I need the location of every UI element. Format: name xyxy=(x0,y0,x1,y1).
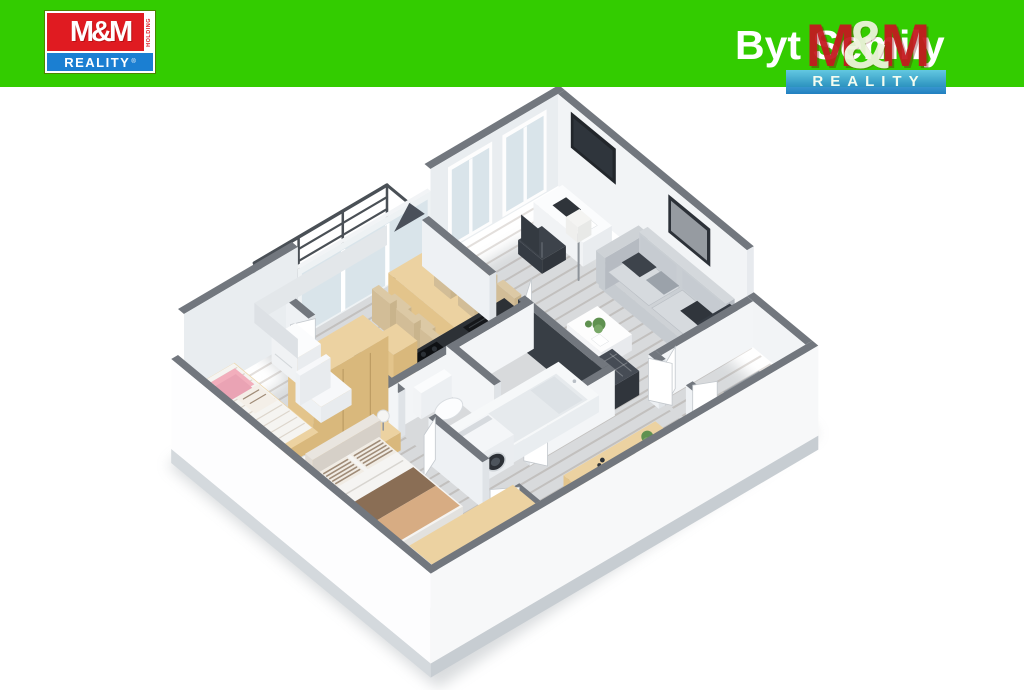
brand-banner: M&M HOLDING REALITY® Byt Semily M & M RE… xyxy=(0,0,1024,87)
mm-reality-logo: M&M HOLDING REALITY® xyxy=(45,11,155,73)
door-leaf xyxy=(648,358,672,405)
mm-watermark-text: M & M xyxy=(786,14,946,77)
reality-bar: REALITY® xyxy=(47,51,153,71)
mm-reality-watermark-logo: M & M REALITY xyxy=(786,14,946,94)
ampersand: & xyxy=(841,14,890,77)
holding-strip: HOLDING xyxy=(144,13,153,51)
floor-plan-3d xyxy=(0,87,1024,690)
registered-mark: ® xyxy=(131,59,135,65)
mm-logo-text: M&M xyxy=(70,18,130,47)
mm-logo-red-box: M&M HOLDING xyxy=(47,13,153,51)
